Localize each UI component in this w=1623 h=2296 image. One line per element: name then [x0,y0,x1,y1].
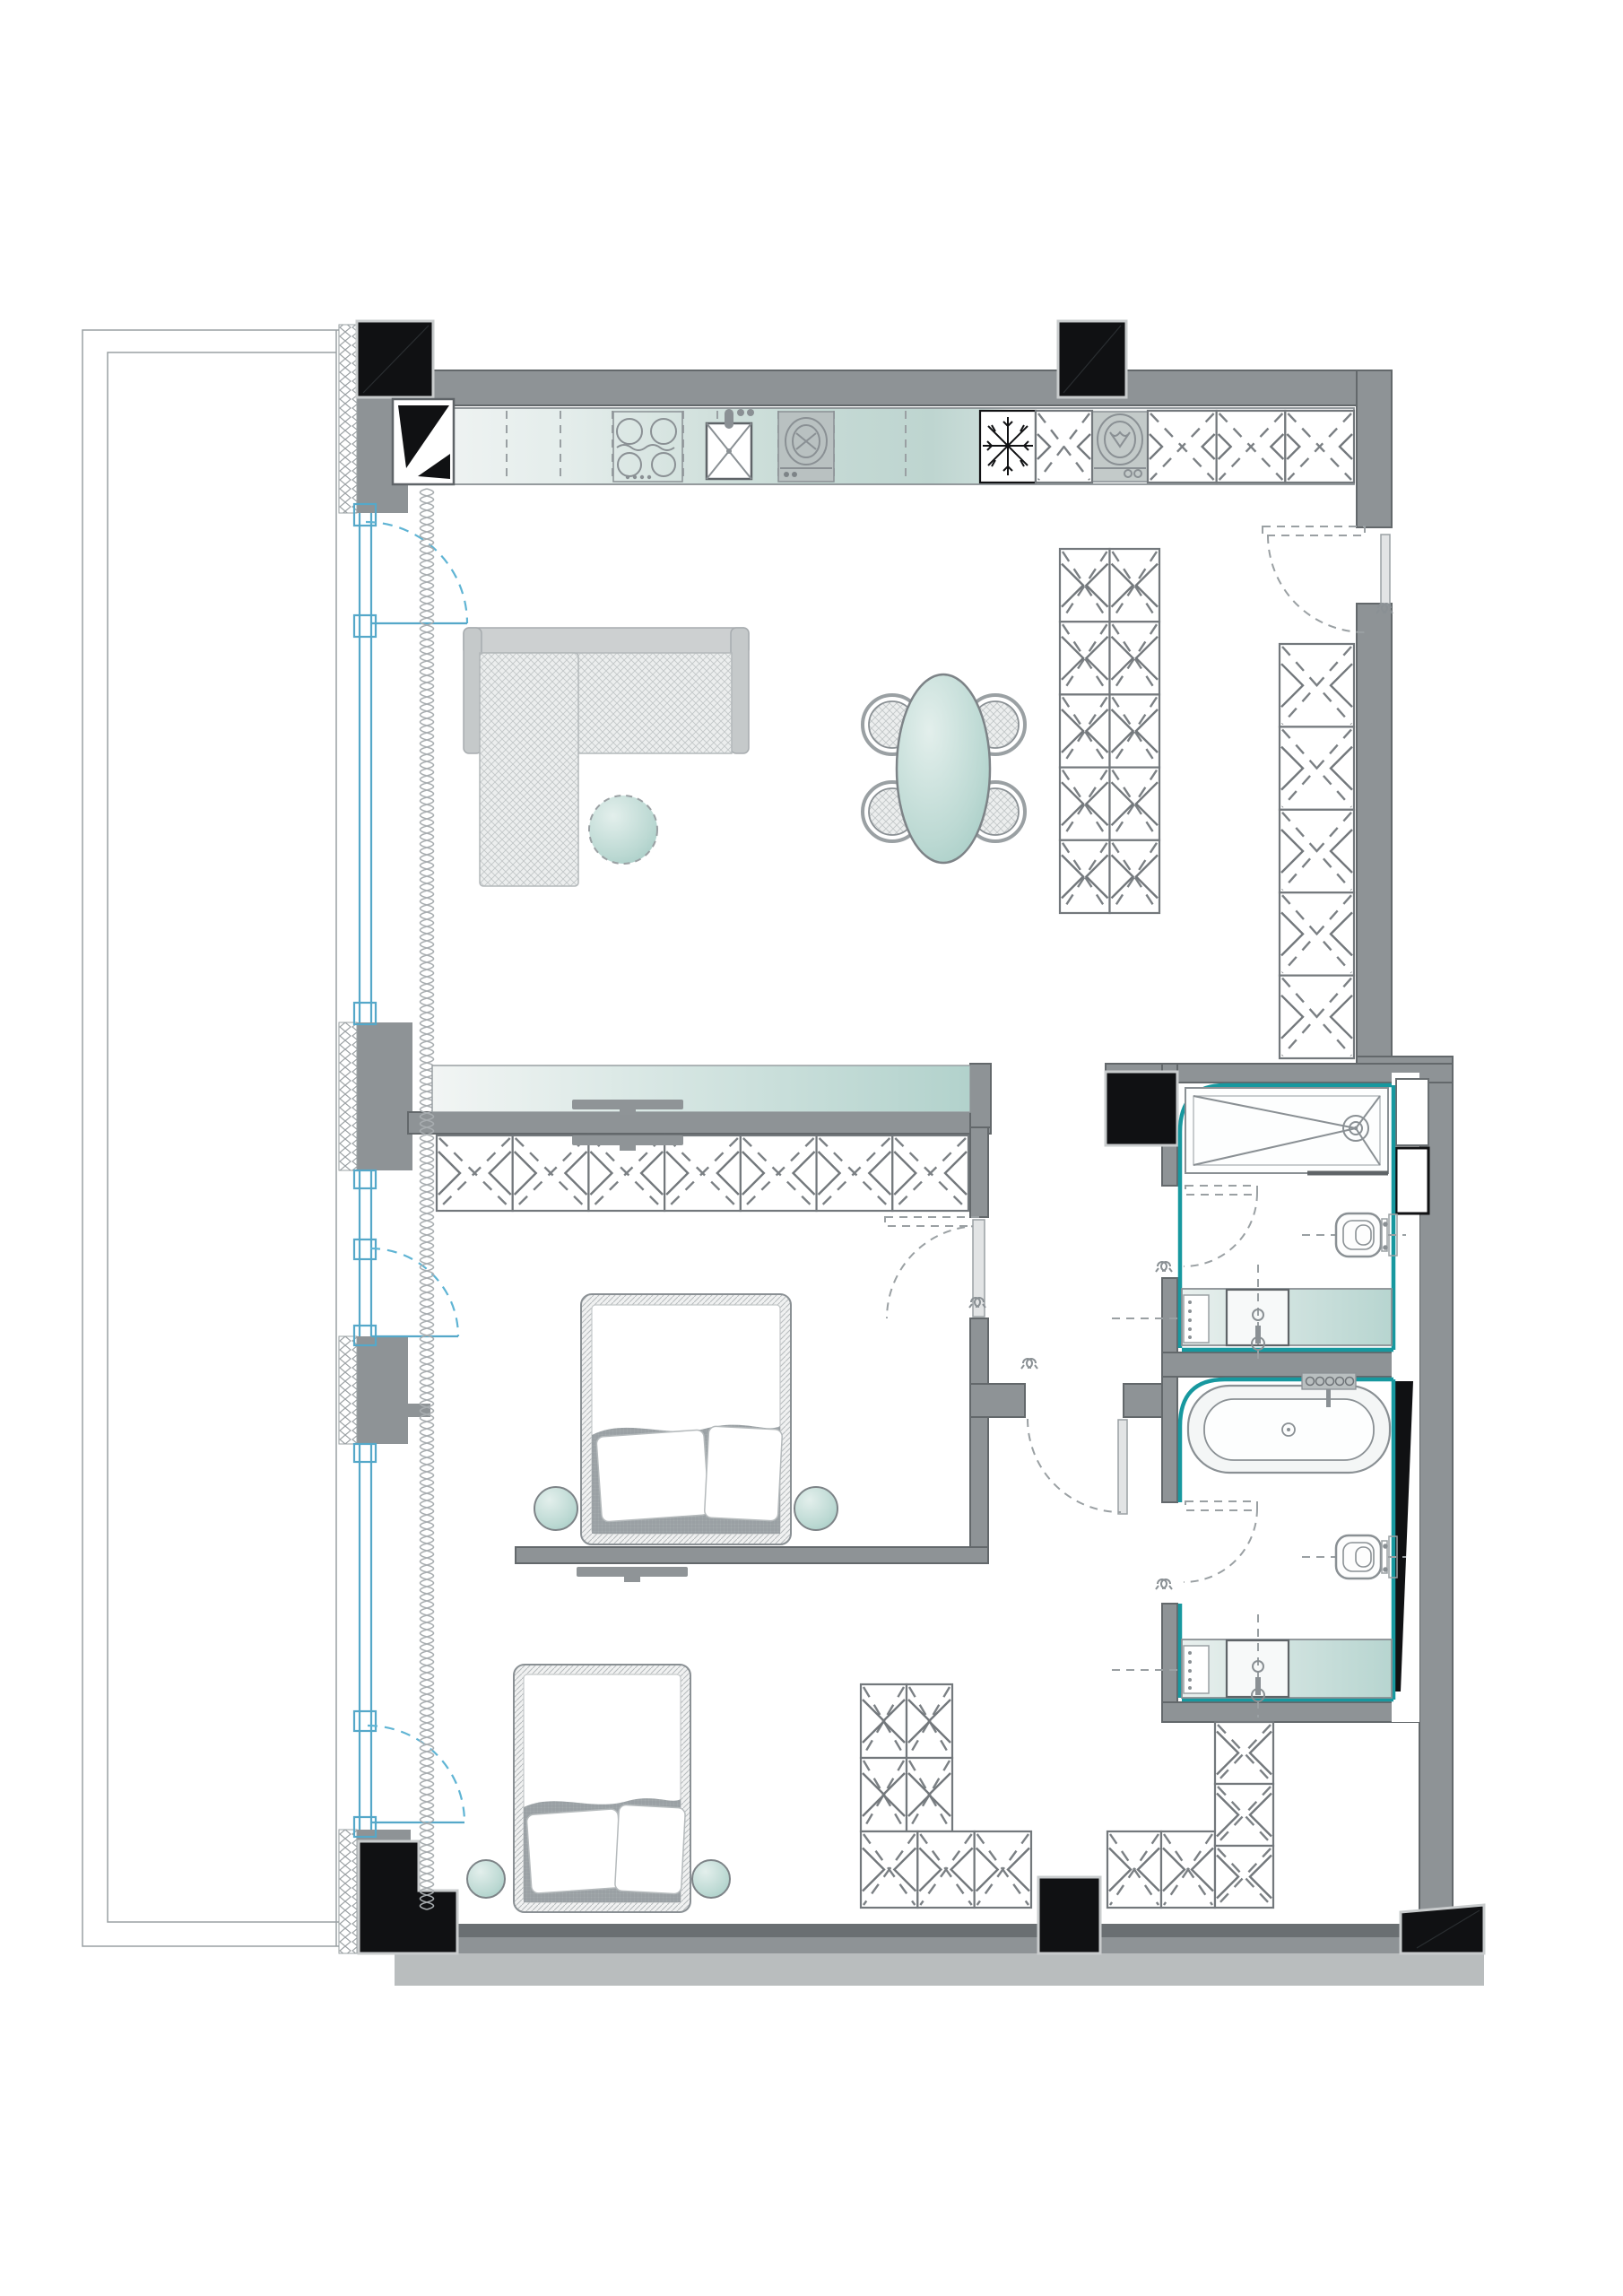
dining-set [863,674,1025,863]
tv-console [432,1065,970,1115]
wardrobe-unit-hall [1280,644,1354,1058]
column-bottom-right [1401,1905,1484,1953]
washing-machine-icon [1092,412,1148,482]
curtain [421,489,434,1909]
column-bathroom [1106,1072,1177,1145]
dishwasher-icon [778,412,834,482]
bedroom1-door [885,1217,985,1318]
floor-plan-canvas [0,0,1623,2296]
wall-bath-divider [1162,1352,1399,1377]
wall-living-bedroom1 [408,1112,991,1134]
curtain-chain [421,489,434,1909]
wardrobe-unit-kitchen-b [1148,411,1354,483]
wardrobe-unit-bd2-left [861,1684,952,1831]
balcony-door-arc-living [366,522,467,623]
wall-bedroom1-right-b [970,1318,988,1384]
wall-bottom-light [395,1953,1484,1986]
bathroom-door [1156,1501,1257,1589]
walk-in-shower [1185,1088,1388,1173]
wall-bottom-dark [395,1924,1484,1937]
wardrobe-unit-bedroom1 [437,1135,968,1211]
wall-hall-bottom-a [970,1384,1025,1417]
shaft-box [1396,1079,1428,1145]
wall-bath-bottom [1162,1702,1419,1722]
balcony-inner-wall [108,352,339,1922]
window-connectors [354,504,376,1837]
wardrobe-unit-kitchen-a [1036,411,1092,483]
insulation-strip [339,325,357,513]
fridge-icon [980,411,1036,483]
wall-right-hall [1357,604,1392,1064]
balcony [82,330,359,1946]
pillow [526,1809,623,1894]
insulation-strip [339,1336,357,1444]
balcony-door-arc-bedroom2 [368,1726,464,1822]
pier-left-2 [357,1336,408,1444]
nightstand [692,1860,730,1898]
toilet-1 [1302,1213,1406,1257]
wall-hall-bottom-b [1124,1384,1162,1417]
bed-2 [514,1665,690,1912]
pillow [596,1430,709,1522]
pier-left-1 [357,1022,412,1170]
pier-console-end [970,1064,991,1127]
insulation-strip [339,1830,357,1953]
bedroom2-door [1021,1359,1127,1514]
insulation-strip [339,1022,357,1170]
wall-bath-left-b [1162,1278,1177,1502]
wall-bottom [395,1937,1484,1953]
pillow [615,1805,686,1894]
living-room [432,628,1025,1115]
wardrobe-unit-bd2-bottom-a [861,1831,1031,1908]
corner-cabinet [393,399,454,484]
bedroom-2 [467,1359,1127,1912]
tub-faucet-icon [1302,1373,1356,1389]
wall-right-upper [1357,370,1392,527]
wardrobe-unit-dining [1060,549,1159,913]
wall-bedroom2-right [970,1417,988,1563]
bathroom [1112,1373,1406,1718]
floor-plan-page [0,0,1623,2296]
nightstand [794,1487,838,1530]
toilet-2 [1302,1535,1406,1578]
shower-room-door [1156,1186,1257,1272]
bathtub [1188,1373,1390,1473]
wardrobe-unit-bd2-bottom-b [1107,1831,1215,1908]
wall-bedroom1-right-a [970,1127,988,1217]
tv-bedroom2 [577,1567,688,1582]
column-bottom-left [359,1841,457,1953]
shower-drain-icon [1354,1126,1358,1130]
pillow [704,1426,782,1521]
wardrobe-unit-bd2-corner [1215,1722,1273,1908]
wall-top [408,370,1392,405]
balcony-door-arc-bedroom1 [370,1248,458,1336]
shaft-box [1396,1148,1428,1213]
nightstand [534,1487,577,1530]
balcony-outer-wall [82,330,359,1946]
dining-table [897,674,990,863]
coffee-table [589,796,657,864]
wall-bedroom-divider [516,1547,988,1563]
bed-1 [581,1294,791,1544]
column-bottom-mid [1038,1877,1100,1953]
nightstand [467,1860,505,1898]
